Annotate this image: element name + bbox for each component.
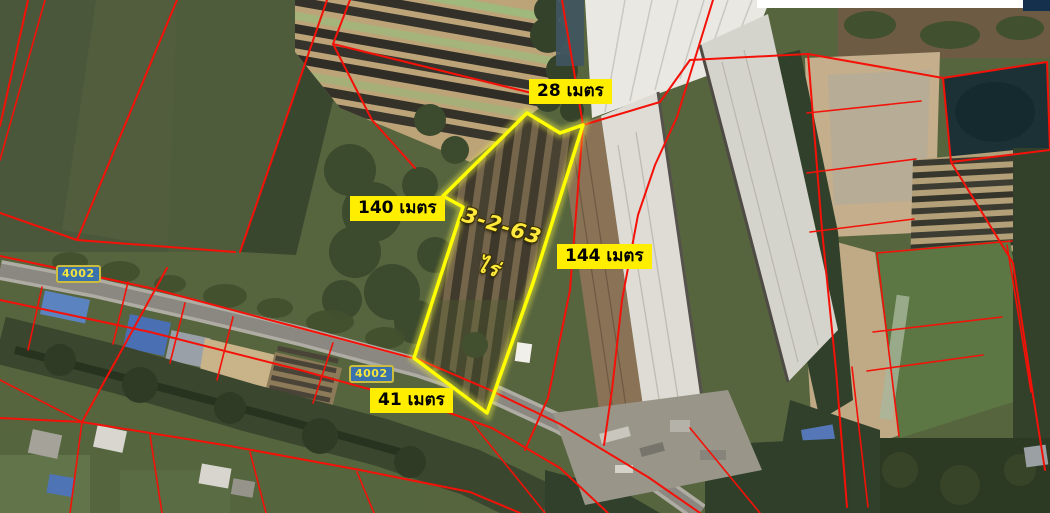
dimension-label-top: 28 เมตร [529,79,612,104]
dimension-label-left: 140 เมตร [350,196,445,221]
route-badge-4002-east: 4002 [349,365,394,383]
dimension-label-bottom: 41 เมตร [370,388,453,413]
top-white-strip [757,0,1023,8]
route-badge-4002-west: 4002 [56,265,101,283]
satellite-map-canvas [0,0,1050,513]
land-plot-satellite-map: 28 เมตร 140 เมตร 144 เมตร 41 เมตร 3-2-63… [0,0,1050,513]
white-structure [515,342,532,363]
dimension-label-right: 144 เมตร [557,244,652,269]
top-corner-dark-strip [1023,0,1050,11]
